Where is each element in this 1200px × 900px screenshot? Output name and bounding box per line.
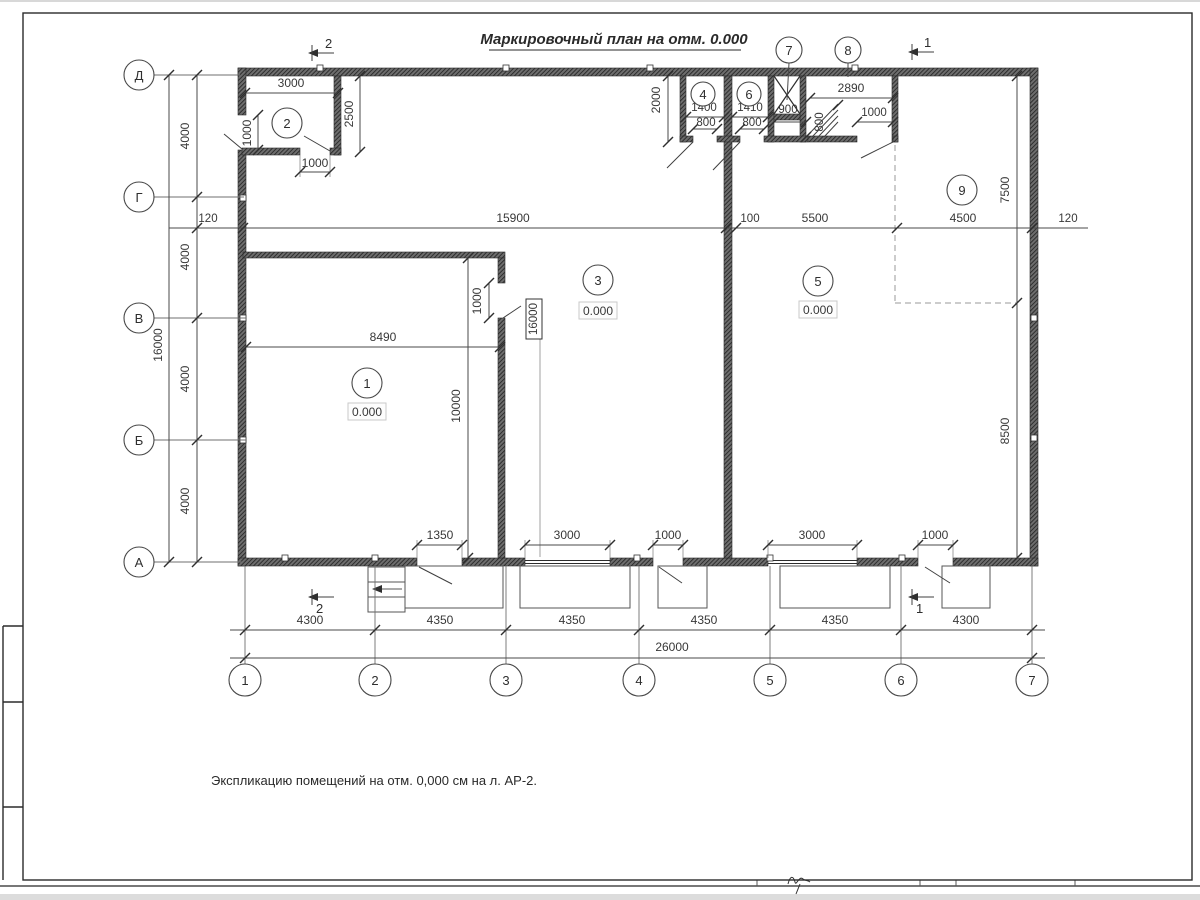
dim-bottom-bay: 4300 <box>953 613 980 627</box>
dim-room6-door: 800 <box>742 117 761 129</box>
svg-text:Г: Г <box>135 190 142 205</box>
dim-south-opening: 1000 <box>655 528 682 542</box>
room-2-label: 2 <box>272 108 302 138</box>
dim-room1-depth: 10000 <box>449 389 463 423</box>
dim-room2-bottom-door: 1000 <box>302 156 329 170</box>
dim-gamma: 120 <box>1058 213 1077 225</box>
dim-room4-door: 800 <box>696 117 715 129</box>
dim-room1-door: 1000 <box>470 287 484 314</box>
axis-row-D: Д <box>124 60 154 90</box>
axis-col-7: 7 <box>1016 664 1048 696</box>
axis-lines <box>154 75 1032 664</box>
porch-4 <box>780 566 890 608</box>
dim-room2-depth: 2500 <box>342 100 356 127</box>
exterior-wall-south <box>238 558 417 566</box>
dim-bottom-bay: 4350 <box>427 613 454 627</box>
svg-text:А: А <box>135 555 144 570</box>
section-1-top: 1 <box>908 35 934 60</box>
svg-text:6: 6 <box>897 673 904 688</box>
column-axis-bubbles: 1 2 3 4 5 6 7 <box>229 664 1048 696</box>
room4-west-wall <box>680 76 686 142</box>
room8-east-wall <box>892 76 898 142</box>
room2-bottom-door-leaf <box>304 136 330 151</box>
svg-text:7: 7 <box>785 43 792 58</box>
entry-door-leaf-1 <box>419 567 452 584</box>
block-south-wall <box>717 136 740 142</box>
svg-text:2: 2 <box>325 36 332 51</box>
room-6-label: 6 <box>737 82 761 106</box>
axis-col-1: 1 <box>229 664 261 696</box>
svg-text:2: 2 <box>283 116 290 131</box>
room8-door-leaf <box>861 142 893 158</box>
axis-row-B: Б <box>124 425 154 455</box>
entry-door-leaf-2 <box>659 567 682 583</box>
dim-bottom-bay: 4350 <box>691 613 718 627</box>
dim-south-opening: 1000 <box>922 528 949 542</box>
svg-text:5: 5 <box>766 673 773 688</box>
section-2-top: 2 <box>308 36 334 61</box>
exterior-wall-south <box>953 558 1038 566</box>
exterior-wall-north <box>238 68 1038 76</box>
porches <box>368 566 990 612</box>
door-swings <box>224 134 950 584</box>
room4-door-leaf <box>667 142 693 168</box>
svg-text:2: 2 <box>371 673 378 688</box>
dim-block-depth: 2000 <box>649 86 663 113</box>
svg-text:3: 3 <box>502 673 509 688</box>
svg-text:6: 6 <box>745 87 752 102</box>
dim-south-opening: 3000 <box>799 528 826 542</box>
svg-text:9: 9 <box>958 183 965 198</box>
axis-col-5: 5 <box>754 664 786 696</box>
room2-south-wall <box>330 148 341 155</box>
exterior-wall-west <box>238 150 246 566</box>
room-1-elevation: 0.000 <box>352 405 382 419</box>
dimension-ticks <box>164 70 1037 663</box>
svg-text:4: 4 <box>635 673 642 688</box>
dim-gamma: 15900 <box>496 211 530 225</box>
room-4-label: 4 <box>691 82 715 106</box>
entry-door-leaf-3 <box>925 567 950 583</box>
wall-tag-text: 16000 <box>528 303 540 335</box>
dim-shaft-width: 900 <box>778 104 797 116</box>
axis-row-V: В <box>124 303 154 333</box>
svg-text:1: 1 <box>924 35 931 50</box>
section-2-bottom: 2 <box>308 589 334 616</box>
dim-room8-door: 1000 <box>861 107 887 119</box>
section-markers: 2 2 1 1 <box>308 35 934 616</box>
floor-plan-drawing: Маркировочный план на отм. 0.000 <box>0 0 1200 900</box>
shaft-east-wall <box>800 76 806 142</box>
svg-text:3: 3 <box>594 273 601 288</box>
room1-north-wall <box>243 252 505 258</box>
axis-col-6: 6 <box>885 664 917 696</box>
room-3-label: 3 0.000 <box>579 265 617 319</box>
dim-south-opening: 3000 <box>554 528 581 542</box>
dim-gamma: 5500 <box>802 211 829 225</box>
row-axis-bubbles: Д Г В Б А <box>124 60 154 577</box>
dim-room2-left-door: 1000 <box>240 119 254 146</box>
title-text: Маркировочный план на отм. 0.000 <box>480 31 748 48</box>
porch-1 <box>405 566 503 608</box>
axis-col-2: 2 <box>359 664 391 696</box>
room2-east-wall <box>334 76 341 155</box>
block-south-wall <box>893 136 898 142</box>
svg-text:8: 8 <box>844 43 851 58</box>
drawing-title: Маркировочный план на отм. 0.000 <box>480 31 748 50</box>
room-5-label: 5 0.000 <box>799 266 837 318</box>
dim-bottom-bay: 4350 <box>822 613 849 627</box>
exterior-wall-south <box>610 558 653 566</box>
dim-gamma: 120 <box>198 213 217 225</box>
axis-row-A: А <box>124 547 154 577</box>
dim-bottom-total: 26000 <box>655 640 689 654</box>
porch-3 <box>658 566 707 608</box>
room2-south-wall <box>242 148 300 155</box>
svg-text:4: 4 <box>699 87 706 102</box>
room-5-elevation: 0.000 <box>803 303 833 317</box>
dim-left-bay: 4000 <box>178 487 192 514</box>
window-south-2 <box>768 561 857 564</box>
exterior-wall-south <box>683 558 768 566</box>
dim-left-bay: 4000 <box>178 122 192 149</box>
svg-text:1: 1 <box>241 673 248 688</box>
dim-entry: 1350 <box>427 528 454 542</box>
dimension-texts: 16000 4000 4000 4000 4000 120 15900 100 … <box>151 76 1078 654</box>
room1-east-wall <box>498 258 505 283</box>
svg-text:В: В <box>135 311 144 326</box>
dim-left-total: 16000 <box>151 328 165 362</box>
dim-room1-width: 8490 <box>370 330 397 344</box>
room6-east-wall <box>768 76 774 142</box>
window-south-1 <box>525 561 610 564</box>
dim-bottom-bay: 4350 <box>559 613 586 627</box>
center-partition-wall <box>724 76 732 558</box>
porch-5 <box>942 566 990 608</box>
dim-ramp: 800 <box>814 112 826 131</box>
svg-text:Д: Д <box>135 68 144 83</box>
dim-left-bay: 4000 <box>178 243 192 270</box>
stair-direction-arrow-icon <box>372 585 382 593</box>
porch-2 <box>520 566 630 608</box>
axis-row-G: Г <box>124 182 154 212</box>
dim-right-lower: 8500 <box>998 417 1012 444</box>
svg-text:1: 1 <box>363 376 370 391</box>
dim-right-upper: 7500 <box>998 176 1012 203</box>
dim-left-bay: 4000 <box>178 365 192 392</box>
section-1-bottom: 1 <box>908 589 934 616</box>
svg-text:Б: Б <box>135 433 144 448</box>
walls <box>238 68 1038 566</box>
svg-text:2: 2 <box>316 601 323 616</box>
block-south-wall <box>680 136 693 142</box>
dim-gamma: 4500 <box>950 211 977 225</box>
room1-east-wall <box>498 318 505 558</box>
svg-text:1: 1 <box>916 601 923 616</box>
room-3-elevation: 0.000 <box>583 304 613 318</box>
wall-tag: 16000 <box>526 299 542 339</box>
room-9-label: 9 <box>947 175 977 205</box>
axis-col-4: 4 <box>623 664 655 696</box>
room1-door-leaf <box>503 306 521 318</box>
room-1-label: 1 0.000 <box>348 368 386 420</box>
dim-room8-width: 2890 <box>838 81 865 95</box>
exterior-wall-south <box>462 558 525 566</box>
axis-col-3: 3 <box>490 664 522 696</box>
block-south-wall <box>808 136 857 142</box>
explication-note: Экспликацию помещений на отм. 0,000 см н… <box>211 773 537 788</box>
svg-text:5: 5 <box>814 274 821 289</box>
svg-text:7: 7 <box>1028 673 1035 688</box>
dim-room2-width: 3000 <box>278 76 305 90</box>
exterior-wall-south <box>857 558 918 566</box>
dim-gamma: 100 <box>740 213 759 225</box>
drawing-sheet: Маркировочный план на отм. 0.000 <box>0 0 1200 900</box>
